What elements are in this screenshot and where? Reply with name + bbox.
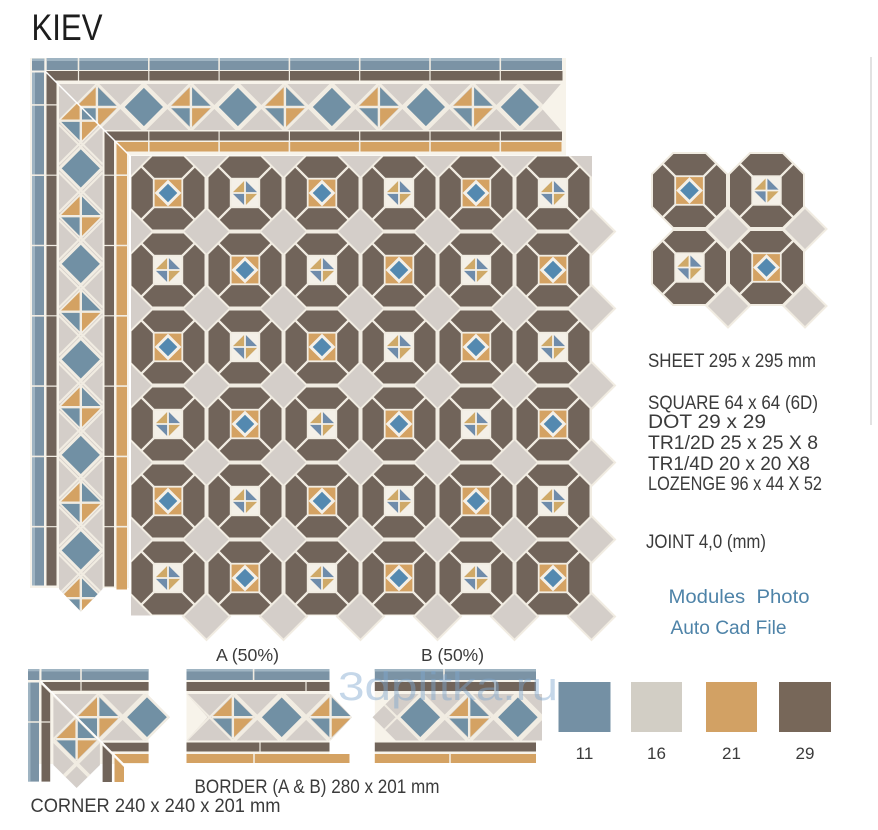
svg-text:TR1/4D 20 x 20 X8: TR1/4D 20 x 20 X8	[648, 454, 810, 475]
svg-text:Modules Photo: Modules Photo	[669, 587, 810, 608]
svg-text:DOT 29 x 29: DOT 29 x 29	[648, 412, 766, 433]
svg-text:11: 11	[576, 744, 594, 763]
svg-text:B (50%): B (50%)	[421, 645, 484, 665]
svg-text:KIEV: KIEV	[32, 7, 103, 48]
svg-text:Auto Cad File: Auto Cad File	[671, 618, 787, 639]
svg-text:SHEET 295 x 295 mm: SHEET 295 x 295 mm	[648, 351, 816, 372]
svg-text:29: 29	[796, 744, 815, 763]
svg-text:CORNER 240 x 240 x 201 mm: CORNER 240 x 240 x 201 mm	[31, 796, 281, 817]
svg-text:A (50%): A (50%)	[216, 645, 279, 665]
svg-text:21: 21	[722, 744, 741, 763]
svg-text:BORDER (A & B) 280 x 201 mm: BORDER (A & B) 280 x 201 mm	[195, 777, 440, 798]
svg-text:JOINT 4,0 (mm): JOINT 4,0 (mm)	[646, 532, 766, 553]
svg-text:16: 16	[647, 744, 666, 763]
svg-text:TR1/2D 25 x 25 X 8: TR1/2D 25 x 25 X 8	[648, 433, 818, 454]
svg-text:LOZENGE 96 x 44 X 52: LOZENGE 96 x 44 X 52	[648, 474, 822, 495]
svg-text:SQUARE 64 x 64 (6D): SQUARE 64 x 64 (6D)	[648, 393, 818, 414]
svg-text:3dplitka.ru: 3dplitka.ru	[338, 665, 558, 709]
